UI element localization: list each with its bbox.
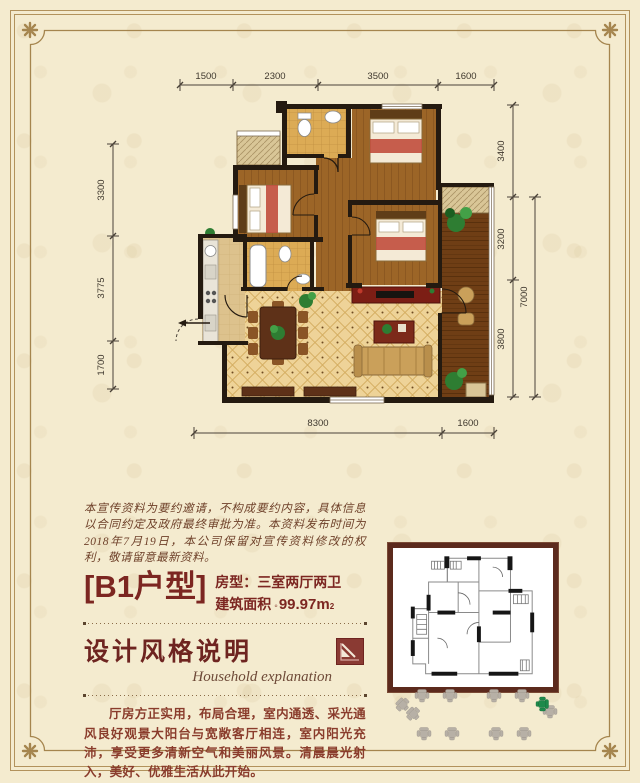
- corner-flower-icon: [603, 23, 617, 37]
- inset-plan-schematic: [398, 553, 546, 680]
- dim-label: 1500: [195, 71, 216, 82]
- area-value: 99.97m: [279, 596, 330, 613]
- corner-arrow-icon: [336, 638, 364, 665]
- bay-closet: [237, 133, 280, 165]
- chair-icon: [487, 690, 501, 703]
- floor-plan: 1500 2300 3500 1600 3300 3775 1700 3400 …: [90, 65, 560, 465]
- dim-label: 2300: [264, 71, 285, 82]
- dim-label: 8300: [307, 418, 328, 429]
- chair-icon: [515, 690, 529, 703]
- chair-icon: [417, 728, 431, 741]
- section-heading: 设计风格说明: [84, 632, 366, 668]
- inset-plan-card: [388, 543, 558, 692]
- living-dining-room: [226, 291, 442, 401]
- sideboard: [304, 387, 356, 396]
- chair-icon: [517, 728, 531, 741]
- unit-meta: 房型：三室两厅两卫 建筑面积◦99.97m2: [215, 571, 341, 614]
- dim-label: 3800: [496, 328, 507, 349]
- kitchen-counter: [203, 240, 218, 343]
- unit-title-row: [B1户型] 房型：三室两厅两卫 建筑面积◦99.97m2: [84, 571, 366, 614]
- chair-watermark: [375, 683, 570, 773]
- corner-flower-icon: [23, 744, 37, 758]
- dotted-divider: [84, 695, 366, 696]
- tv-wall: [352, 287, 440, 303]
- corner-flower-icon: [603, 744, 617, 758]
- section-body-text: 厅房方正实用，布局合理，室内通透、采光通风良好观景大阳台与宽敞客厅相连，室内阳光…: [84, 705, 366, 783]
- floor-drain: [466, 383, 486, 397]
- dim-label: 3500: [367, 71, 388, 82]
- chair-icon: [489, 728, 503, 741]
- unit-title: [B1户型]: [84, 571, 206, 602]
- dim-label: 7000: [519, 286, 530, 307]
- unit-room-type: 房型：三室两厅两卫: [215, 572, 341, 592]
- area-sup: 2: [330, 602, 334, 611]
- design-style-section: 设计风格说明 Household explanation 厅房方正实用，布局合理…: [84, 632, 366, 783]
- corner-flower-icon: [23, 23, 37, 37]
- sideboard: [242, 387, 294, 396]
- section-subheading: Household explanation: [84, 669, 332, 686]
- poster-page: { "poster": { "bg_color": "#f4ebcf", "fr…: [0, 0, 640, 781]
- dim-label: 1700: [96, 354, 107, 375]
- dim-label: 3775: [96, 277, 107, 298]
- chair-icon: [443, 690, 457, 703]
- area-label: 建筑面积: [215, 594, 271, 614]
- bed-master: [376, 211, 426, 261]
- text-column: 本宣传资料为要约邀请，不构成要约内容，具体信息以合同约定及政府最终审批为准。本资…: [84, 501, 366, 783]
- disclaimer-text: 本宣传资料为要约邀请，不构成要约内容，具体信息以合同约定及政府最终审批为准。本资…: [84, 501, 366, 566]
- dim-label: 3300: [96, 179, 107, 200]
- bed-left: [239, 185, 291, 233]
- dim-label: 1600: [455, 71, 476, 82]
- dim-label: 3200: [496, 228, 507, 249]
- chair-icon: [445, 728, 459, 741]
- area-separator: ◦: [274, 601, 278, 612]
- unit-area-line: 建筑面积◦99.97m2: [215, 594, 341, 614]
- chair-icon: [415, 690, 429, 703]
- dotted-divider: [84, 623, 366, 624]
- dim-label: 1600: [457, 418, 478, 429]
- hallway: [316, 158, 352, 291]
- bed-top-right: [370, 110, 422, 163]
- dim-label: 3400: [496, 140, 507, 161]
